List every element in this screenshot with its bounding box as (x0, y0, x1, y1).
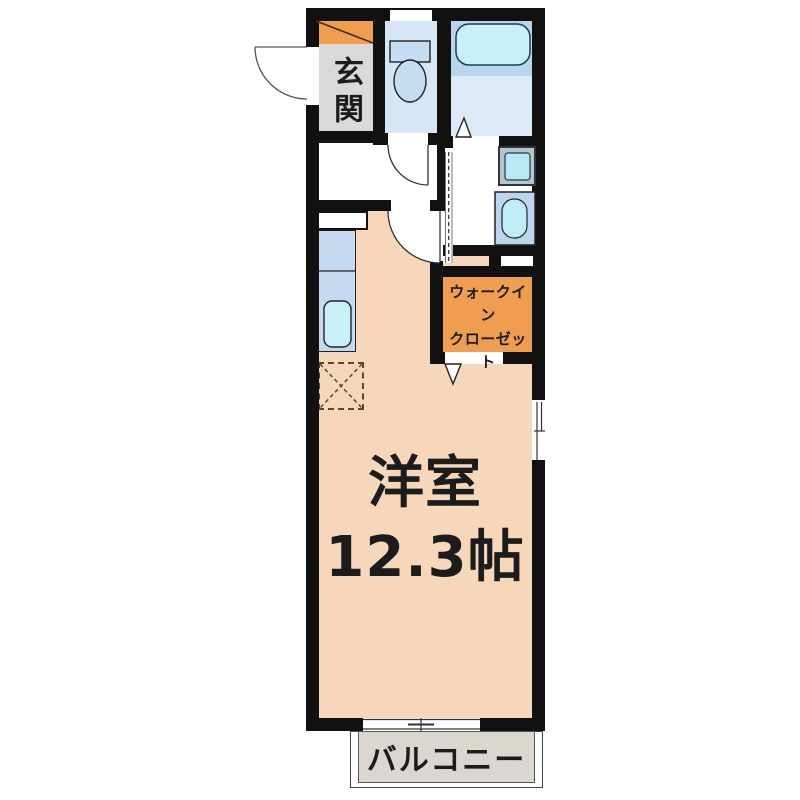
closet-label: ウォークイン クローゼット (443, 281, 533, 374)
toilet-window (390, 8, 432, 21)
hallway (317, 143, 437, 203)
main-room-area: 12.3帖 (317, 521, 533, 595)
washroom-window (501, 256, 533, 266)
kitchen-shelf (313, 211, 368, 230)
entrance-door-opening (306, 47, 319, 105)
toilet-door-opening (388, 133, 428, 145)
wall-closet-left (430, 261, 443, 364)
kitchen-counter (317, 230, 356, 352)
wall-right (532, 8, 545, 731)
bathroom-door-opening (453, 136, 499, 148)
main-room-label: 洋室 12.3帖 (317, 447, 533, 595)
shoe-cabinet (315, 20, 375, 44)
main-door-opening (391, 200, 430, 211)
balcony-label: バルコニー (358, 731, 535, 783)
closet-label-line2: クローゼット (443, 328, 533, 375)
room-bathroom (451, 76, 533, 138)
entrance-door-swing-icon (255, 47, 307, 99)
balcony-door-opening (363, 718, 480, 731)
wall-hall-bottom (313, 200, 391, 211)
plan-canvas: 玄関 ウォークイン クローゼット 洋室 12.3帖 バルコニー (0, 0, 800, 800)
entrance-label: 玄関 (322, 50, 368, 136)
closet-label-line1: ウォークイン (443, 281, 533, 328)
wall-closet-top (443, 266, 533, 277)
washroom-sliding-opening (445, 150, 453, 263)
wall-washroom-bottom (443, 245, 533, 256)
main-window (532, 400, 545, 460)
wall-left (306, 8, 319, 731)
room-bathroom-tub-zone (451, 21, 533, 76)
floorplan-page: { "rooms": { "entrance": { "label": "玄関"… (0, 0, 800, 800)
main-room-name: 洋室 (317, 447, 533, 521)
wall-toilet-bath (437, 8, 451, 148)
refrigerator-space (318, 362, 364, 410)
room-toilet (385, 21, 437, 136)
wall-entrance-toilet (373, 8, 385, 145)
room-washroom (443, 148, 533, 245)
